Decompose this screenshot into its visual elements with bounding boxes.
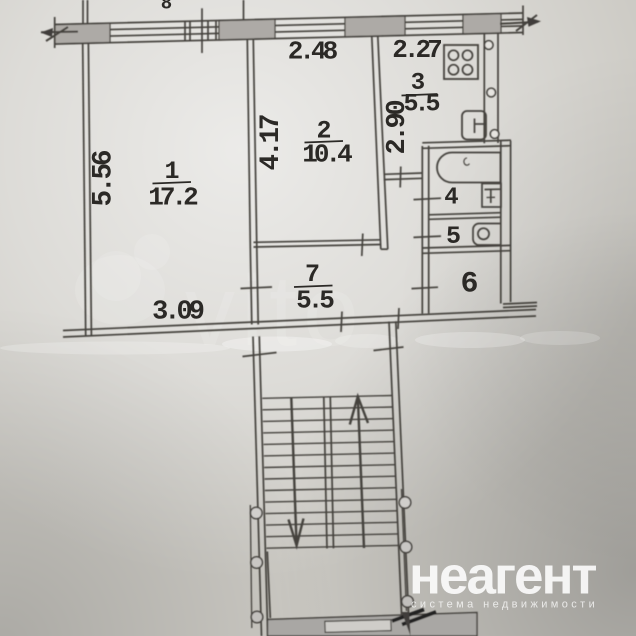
- svg-text:5.56: 5.56: [89, 151, 120, 207]
- svg-text:5: 5: [446, 222, 461, 251]
- svg-text:4: 4: [444, 185, 458, 212]
- svg-text:5.5: 5.5: [296, 286, 334, 316]
- svg-text:2.27: 2.27: [392, 35, 441, 65]
- svg-text:10.4: 10.4: [302, 140, 352, 170]
- svg-text:2.90: 2.90: [383, 100, 413, 154]
- svg-text:8: 8: [161, 0, 172, 15]
- svg-text:4.17: 4.17: [256, 115, 287, 171]
- svg-text:6: 6: [460, 268, 478, 302]
- svg-text:неагент: неагент: [409, 547, 597, 606]
- svg-text:17.2: 17.2: [148, 183, 198, 213]
- svg-text:3.09: 3.09: [152, 298, 204, 328]
- svg-text:2.48: 2.48: [288, 37, 338, 67]
- svg-text:система недвижимости: система недвижимости: [411, 599, 598, 611]
